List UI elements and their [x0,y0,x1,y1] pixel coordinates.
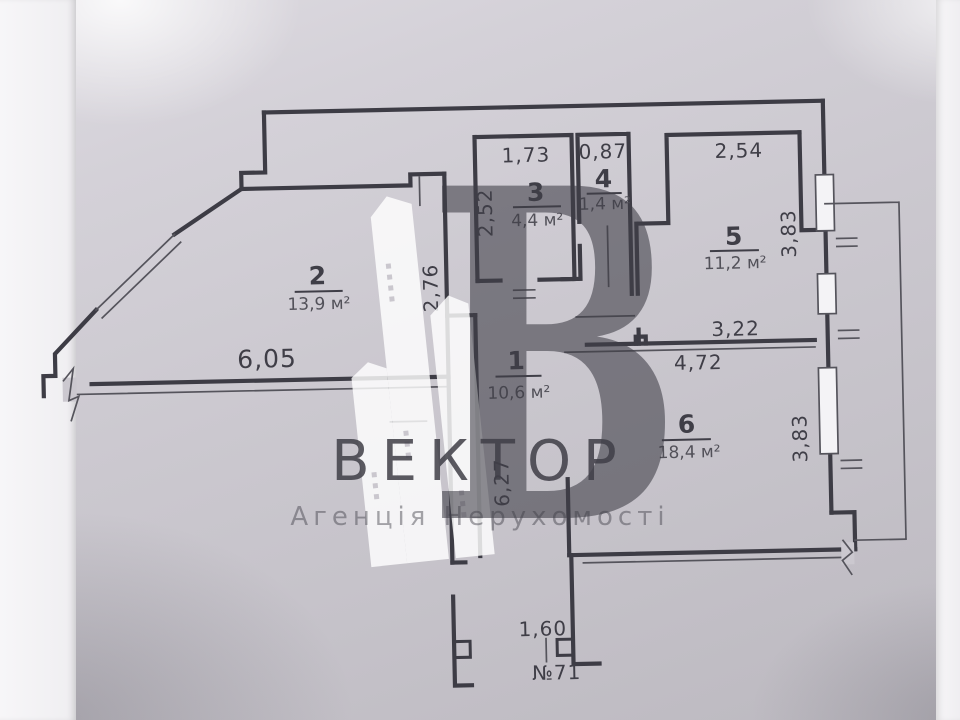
watermark-tagline: Агенція Нерухомості [290,502,669,532]
dim-hall-to-room6: 3,22 [711,316,760,341]
room-5-area: 11,2 м² [704,253,767,274]
room-5-number: 5 [725,221,743,250]
dim-room6-height: 3,83 [787,414,812,463]
break-mark-left [62,368,79,420]
right-wall-windows [814,174,861,469]
agency-watermark: B ВЕКТОР Агенція Нерухомості [290,91,681,626]
floor-plan: 2 13,9 м² 6,05 1,73 3 4,4 м² 2,52 0,87 4… [0,0,960,720]
dim-room2-width: 6,05 [237,344,297,374]
dim-room5-height: 3,83 [776,209,801,258]
break-mark-right [841,540,855,574]
room-2-area: 13,9 м² [287,294,350,315]
dim-room5-width: 2,54 [714,138,763,163]
room-2-number: 2 [308,261,326,290]
watermark-brand: ВЕКТОР [331,429,629,494]
apartment-number: №71 [532,660,582,685]
room2-diagonal-window [94,234,182,318]
watermark-logo-letter: B [428,91,682,626]
